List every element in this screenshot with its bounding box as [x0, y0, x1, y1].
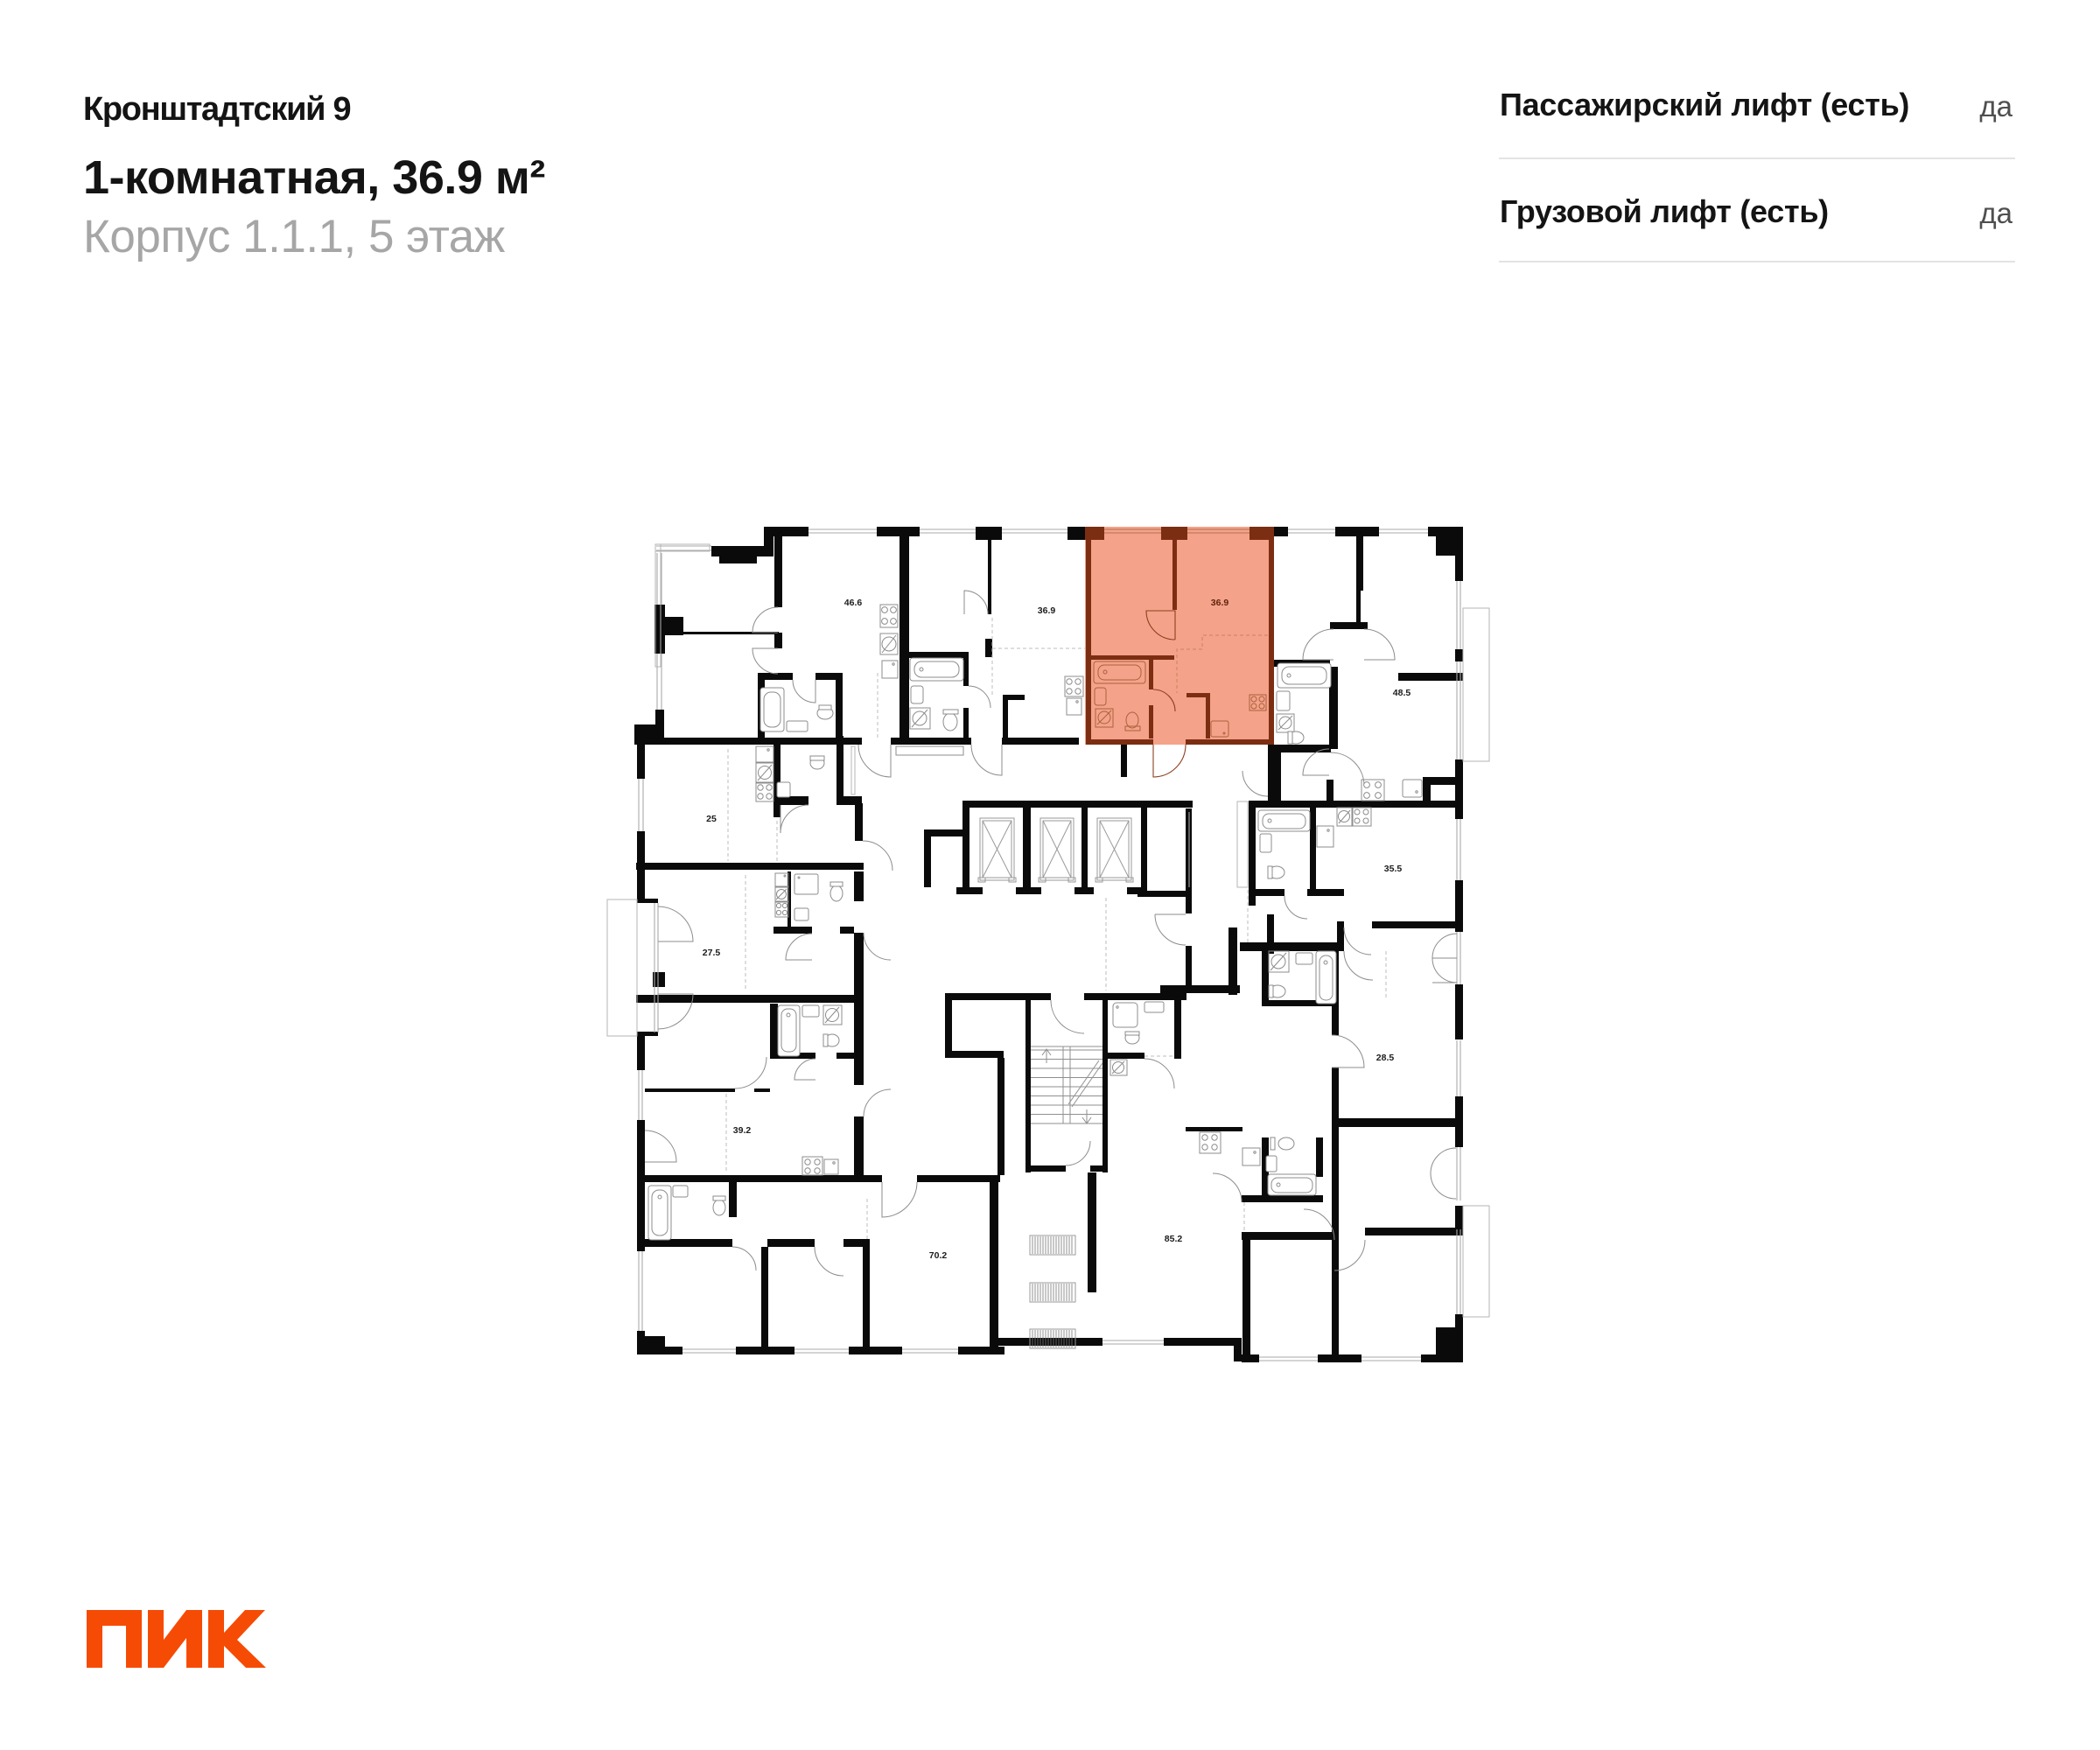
svg-text:39.2: 39.2	[733, 1125, 752, 1136]
svg-text:85.2: 85.2	[1165, 1234, 1183, 1244]
svg-text:70.2: 70.2	[929, 1250, 948, 1261]
svg-text:35.5: 35.5	[1384, 864, 1403, 874]
svg-text:25: 25	[706, 814, 717, 824]
svg-text:36.9: 36.9	[1211, 598, 1229, 608]
svg-text:46.6: 46.6	[844, 598, 863, 608]
svg-text:36.9: 36.9	[1038, 605, 1056, 616]
svg-text:28.5: 28.5	[1376, 1053, 1395, 1063]
svg-text:48.5: 48.5	[1393, 688, 1411, 698]
svg-text:27.5: 27.5	[703, 948, 721, 958]
